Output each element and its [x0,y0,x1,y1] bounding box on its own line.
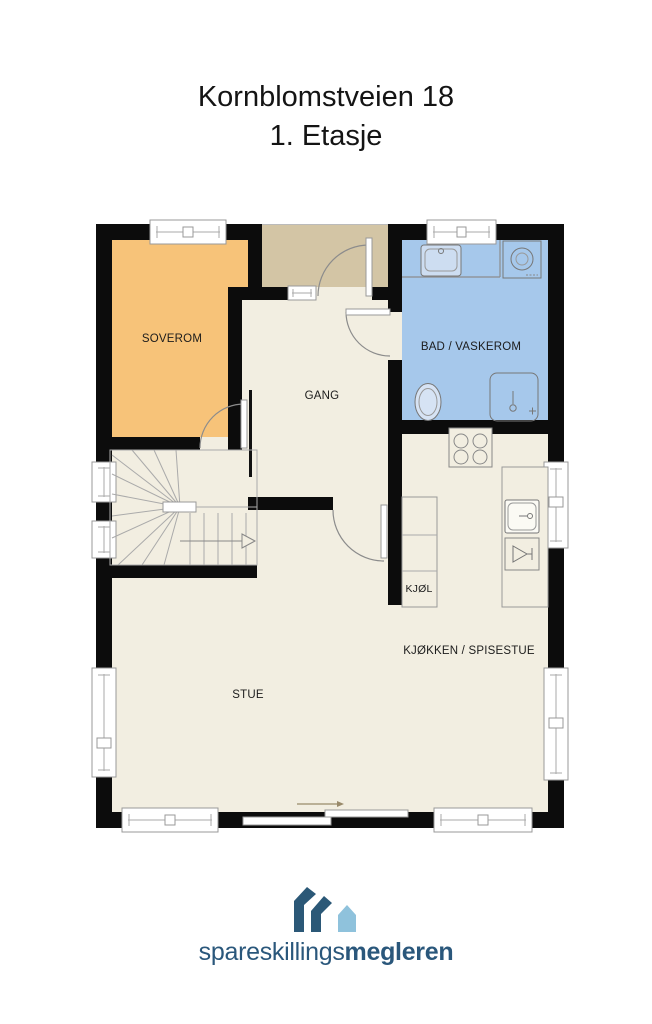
bathroom-label: BAD / VASKEROM [421,341,521,353]
hall-label: GANG [305,390,340,402]
stove [449,428,492,467]
bedroom-right-wall [228,287,242,450]
fridge-label: KJØL [405,583,432,595]
porch-bottom-wall-b [372,287,388,300]
hall-living-wall [248,497,333,510]
bath-sink [421,245,461,276]
toilet [415,384,441,421]
porch-bottom-wall-a [262,287,288,300]
bath-left-wall-upper [388,224,402,312]
bedroom-label: SOVEROM [142,333,202,345]
kitchen-left-wall [388,434,402,605]
broker-logo: spareskillingsmegleren [0,884,652,967]
logo-house-middle [311,896,332,932]
logo-text-regular: spareskillings [199,938,345,966]
living-label: STUE [232,689,263,701]
living-left-window [92,668,116,777]
dining-bottom-window-right [434,808,532,832]
bedroom-window [150,220,226,244]
living-bottom-window-left [122,808,218,832]
floorplan-page: Kornblomstveien 18 1. Etasje [0,0,652,1024]
bath-window [427,220,496,244]
dining-right-window [544,668,568,780]
floor-plan [0,0,652,1024]
kitchen-sink [505,500,539,533]
bedroom-door-leaf-line [249,390,252,477]
logo-text-bold: megleren [345,938,454,966]
kitchen-counter [502,467,548,607]
stair-landing-rail [163,502,196,512]
entry-sidelight-window [288,286,316,300]
bedroom-bottom-wall [96,437,200,450]
kitchen-label: KJØKKEN / SPISESTUE [403,645,535,657]
stair-bottom-wall [96,565,257,578]
stair-window-upper [92,462,116,502]
stair-window-lower [92,521,116,558]
broker-logo-text: spareskillingsmegleren [0,938,652,967]
logo-house-right [338,905,356,932]
broker-logo-icon [291,884,361,936]
